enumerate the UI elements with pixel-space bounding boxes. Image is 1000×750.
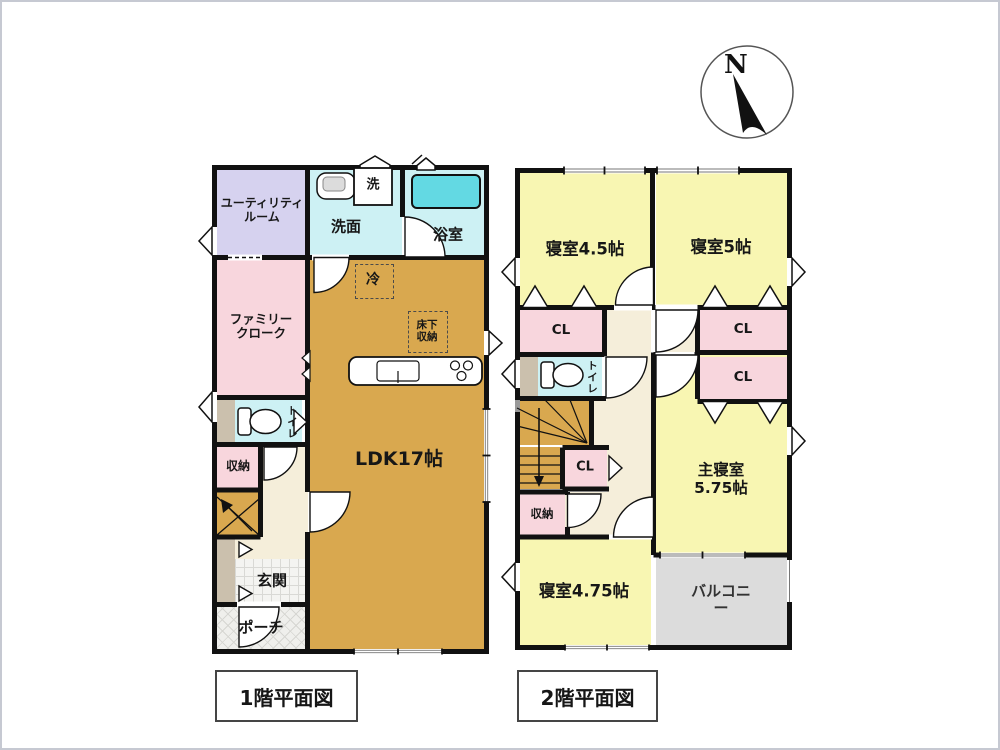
toilet-cabinet-2f xyxy=(520,357,538,397)
closet-right-2-label: CL xyxy=(734,370,753,386)
toilet-label: トイレ xyxy=(286,405,298,440)
entrance-label: 玄関 xyxy=(257,572,287,589)
closet-right-1-label: CL xyxy=(734,322,753,338)
compass-north-label: N xyxy=(724,50,748,80)
closet-small-label: CL xyxy=(576,461,594,476)
toilet-2f-label: トイレ xyxy=(586,360,598,395)
bedroom-4-5-label: 寝室4.5帖 xyxy=(546,241,625,260)
washer-label: 洗 xyxy=(366,179,379,194)
fridge-label: 冷 xyxy=(366,272,380,288)
floor1-plan: ユーティリティ ルーム 洗面 洗 浴室 冷 ファミリー クローク 床下 収納 L… xyxy=(212,165,489,654)
underfloor-storage-label: 床下 収納 xyxy=(417,319,438,343)
closet-left-label: CL xyxy=(552,323,571,339)
washroom xyxy=(310,170,402,257)
floor2-title-box: 2階平面図 xyxy=(517,670,658,722)
ldk-label: LDK17帖 xyxy=(355,449,443,471)
corridor-b xyxy=(594,400,607,445)
bedroom-5-label: 寝室5帖 xyxy=(691,239,752,258)
bedroom-4-75-label: 寝室4.75帖 xyxy=(539,583,629,602)
balcony-label: バルコニー xyxy=(686,583,757,618)
hall-strip xyxy=(656,310,697,352)
hallway-nook xyxy=(235,539,260,559)
staircase xyxy=(217,492,260,537)
floor2-plan: 寝室4.5帖 寝室5帖 CL CL CL トイレ CL 収納 主寝室5.75帖 … xyxy=(515,168,792,650)
corridor-c xyxy=(570,492,651,537)
floor1-title: 1階平面図 xyxy=(240,682,334,711)
storage-label: 収納 xyxy=(226,460,250,474)
porch-label: ポーチ xyxy=(238,619,283,636)
toilet-cabinet xyxy=(217,400,235,444)
washroom-label: 洗面 xyxy=(331,218,361,235)
floor-plan-page: ユーティリティ ルーム 洗面 洗 浴室 冷 ファミリー クローク 床下 収納 L… xyxy=(0,0,1000,750)
shoe-cabinet xyxy=(217,539,235,604)
floor2-title: 2階平面図 xyxy=(541,682,635,711)
family-closet-label: ファミリー クローク xyxy=(230,313,293,342)
master-bedroom-label: 主寝室5.75帖 xyxy=(686,462,757,498)
compass: N xyxy=(697,42,797,142)
staircase-upper xyxy=(520,400,589,445)
staircase-lower xyxy=(520,447,560,489)
utility-room-label: ユーティリティ ルーム xyxy=(221,197,304,225)
storage-2f-label: 収納 xyxy=(531,507,554,520)
bathroom xyxy=(405,170,484,257)
bathroom-label: 浴室 xyxy=(433,226,463,243)
compass-icon: N xyxy=(697,42,797,142)
floor1-title-box: 1階平面図 xyxy=(215,670,358,722)
